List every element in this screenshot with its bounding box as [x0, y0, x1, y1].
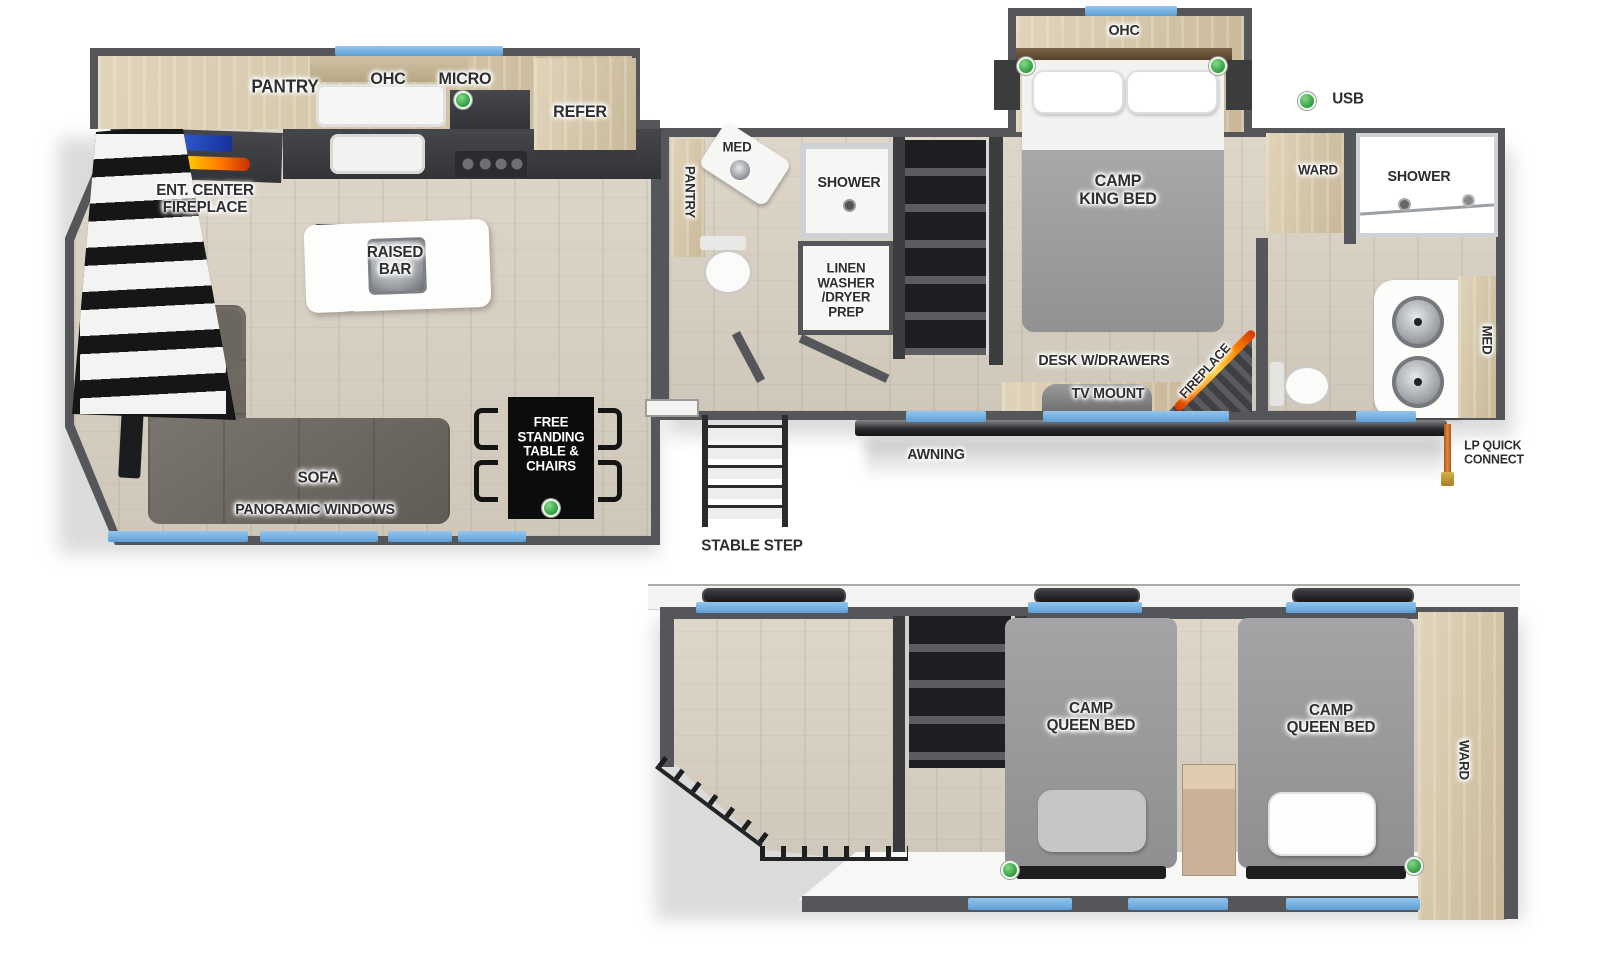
dinette-chair — [598, 460, 622, 502]
stairs-wall — [989, 137, 1003, 365]
indicator-dot-bed — [1017, 57, 1035, 75]
rear-sink-drain — [1414, 318, 1422, 326]
bedroom-rear-wall — [1256, 238, 1268, 414]
lp-hose — [1444, 424, 1451, 476]
label-ohc-bedroom: OHC — [1108, 23, 1139, 39]
loft-nightstand — [1182, 764, 1236, 876]
label-camp-queen-bed-1: CAMP QUEEN BED — [1047, 701, 1136, 735]
stairs-loft — [905, 616, 1015, 768]
window-strip-king-slide — [1085, 6, 1177, 16]
king-nightstand — [994, 60, 1020, 110]
label-awning: AWNING — [907, 447, 964, 463]
window-strip-loft-bottom — [1286, 898, 1420, 910]
window-strip-loft-bottom — [1128, 898, 1228, 910]
label-shower-mid: SHOWER — [818, 175, 881, 191]
stable-step-tread — [708, 465, 782, 479]
window-strip — [1356, 411, 1416, 422]
king-headboard-shelf — [1016, 48, 1232, 60]
rv-floorplan-canvas: FREE STANDING TABLE & CHAIRS PANTRY OHC … — [0, 0, 1600, 961]
label-linen: LINEN WASHER /DRYER PREP — [817, 261, 874, 320]
king-pillow — [1126, 70, 1218, 114]
ward-main-cabinet — [1266, 133, 1344, 233]
entry-door — [645, 399, 699, 417]
window-strip-loft-top — [1286, 602, 1416, 613]
mid-toilet-tank — [700, 236, 746, 250]
loft-stairs-wall — [893, 616, 905, 854]
window-strip — [388, 531, 452, 542]
queen-bed-2-pillow — [1268, 792, 1376, 856]
label-ward-main: WARD — [1298, 163, 1338, 178]
label-lp-quick-connect: LP QUICK CONNECT — [1464, 438, 1524, 465]
king-pillow — [1032, 70, 1124, 114]
label-ward-loft: WARD — [1457, 740, 1472, 780]
label-free-standing-table: FREE STANDING TABLE & CHAIRS — [518, 415, 585, 474]
rear-toilet-tank — [1270, 362, 1284, 406]
label-raised-bar: RAISED BAR — [367, 245, 423, 279]
stable-step-tread — [708, 425, 782, 439]
king-nightstand — [1226, 60, 1252, 110]
indicator-dot-micro — [454, 91, 472, 109]
loft-railing — [760, 846, 908, 861]
rear-sink-drain — [1414, 378, 1422, 386]
stairs-wall — [893, 137, 905, 359]
dinette-chair — [474, 408, 498, 450]
label-ohc-kitchen: OHC — [370, 70, 405, 88]
label-med-rear: MED — [1480, 326, 1495, 355]
stairs-main — [903, 140, 991, 355]
stove-cooktop — [455, 151, 527, 177]
indicator-dot-bed — [1209, 57, 1227, 75]
usb-indicator-dot — [1298, 92, 1316, 110]
label-stable-step: STABLE STEP — [701, 539, 803, 556]
label-panoramic-windows: PANORAMIC WINDOWS — [235, 502, 395, 518]
indicator-dot-loft — [1001, 861, 1019, 879]
queen-bed-2-mat — [1246, 866, 1406, 879]
kitchen-slide-counter — [316, 84, 446, 127]
label-shower-rear: SHOWER — [1388, 169, 1451, 185]
window-strip-loft-top — [696, 602, 848, 613]
mid-vanity-sink — [730, 160, 750, 180]
stable-step-rail — [702, 415, 708, 527]
mid-toilet-bowl — [704, 250, 752, 294]
label-pantry-kitchen: PANTRY — [251, 78, 318, 97]
window-strip-loft-top — [1028, 602, 1142, 613]
window-strip-loft-bottom — [968, 898, 1072, 910]
kitchen-sink — [330, 134, 425, 174]
window-strip — [458, 531, 526, 542]
window-strip — [108, 531, 248, 542]
mid-shower-drain — [843, 199, 856, 212]
stable-step-tread — [708, 485, 782, 499]
label-pantry-mid: PANTRY — [683, 166, 698, 218]
label-tv-mount: TV MOUNT — [1072, 386, 1145, 402]
label-refer: REFER — [553, 103, 607, 121]
label-sofa: SOFA — [298, 471, 339, 488]
stable-step-tread — [708, 445, 782, 459]
rear-shower-drain — [1398, 198, 1411, 211]
stable-step-rail — [782, 415, 788, 527]
loft-right-wall — [1504, 607, 1518, 919]
label-micro: MICRO — [439, 70, 492, 88]
rear-shower-drain — [1462, 194, 1475, 207]
indicator-dot-dinette — [542, 499, 560, 517]
queen-bed-1-mat — [1016, 866, 1166, 879]
label-ent-center: ENT. CENTER FIREPLACE — [156, 183, 254, 217]
queen-bed-1-pillow — [1038, 790, 1146, 852]
label-usb: USB — [1332, 92, 1364, 109]
label-camp-king-bed: CAMP KING BED — [1079, 172, 1156, 208]
awning-bar — [855, 420, 1447, 436]
ward-wall — [1344, 128, 1356, 244]
dinette-chair — [474, 460, 498, 502]
window-strip — [1043, 411, 1229, 422]
window-strip — [906, 411, 986, 422]
living-tv — [118, 407, 144, 478]
window-strip — [260, 531, 378, 542]
indicator-dot-loft — [1405, 857, 1423, 875]
loft-left-wall — [660, 607, 674, 767]
rear-toilet-bowl — [1284, 366, 1330, 406]
label-camp-queen-bed-2: CAMP QUEEN BED — [1287, 703, 1376, 737]
dinette-chair — [598, 408, 622, 450]
label-med-mid: MED — [723, 140, 752, 155]
label-desk: DESK W/DRAWERS — [1038, 353, 1169, 369]
window-strip-kitchen-slide — [335, 46, 503, 56]
lp-fitting — [1441, 472, 1454, 486]
stable-step-tread — [708, 505, 782, 519]
